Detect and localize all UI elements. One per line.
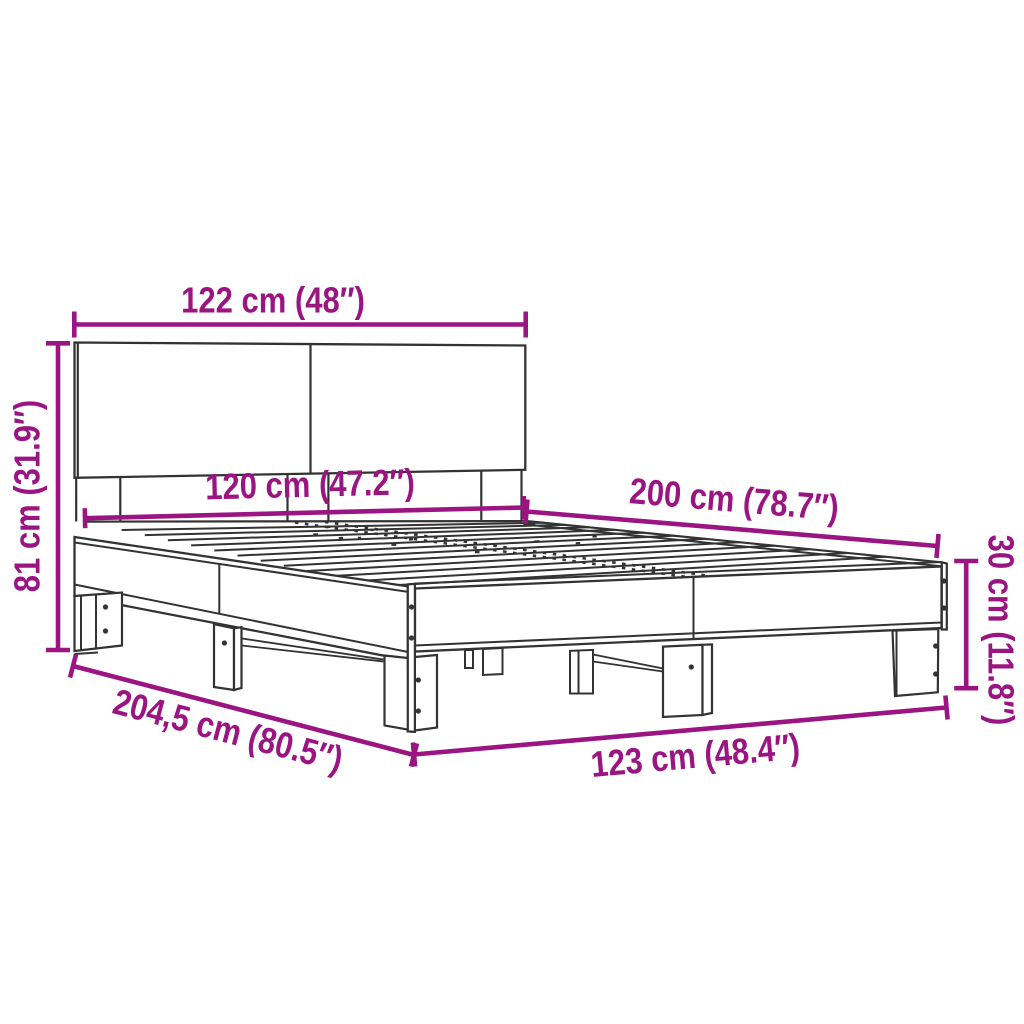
svg-text:81 cm (31.9″): 81 cm (31.9″) [7,400,48,592]
svg-text:30 cm (11.8″): 30 cm (11.8″) [980,535,1021,726]
svg-text:122 cm (48″): 122 cm (48″) [181,280,365,321]
svg-text:120 cm (47.2″): 120 cm (47.2″) [205,462,416,508]
